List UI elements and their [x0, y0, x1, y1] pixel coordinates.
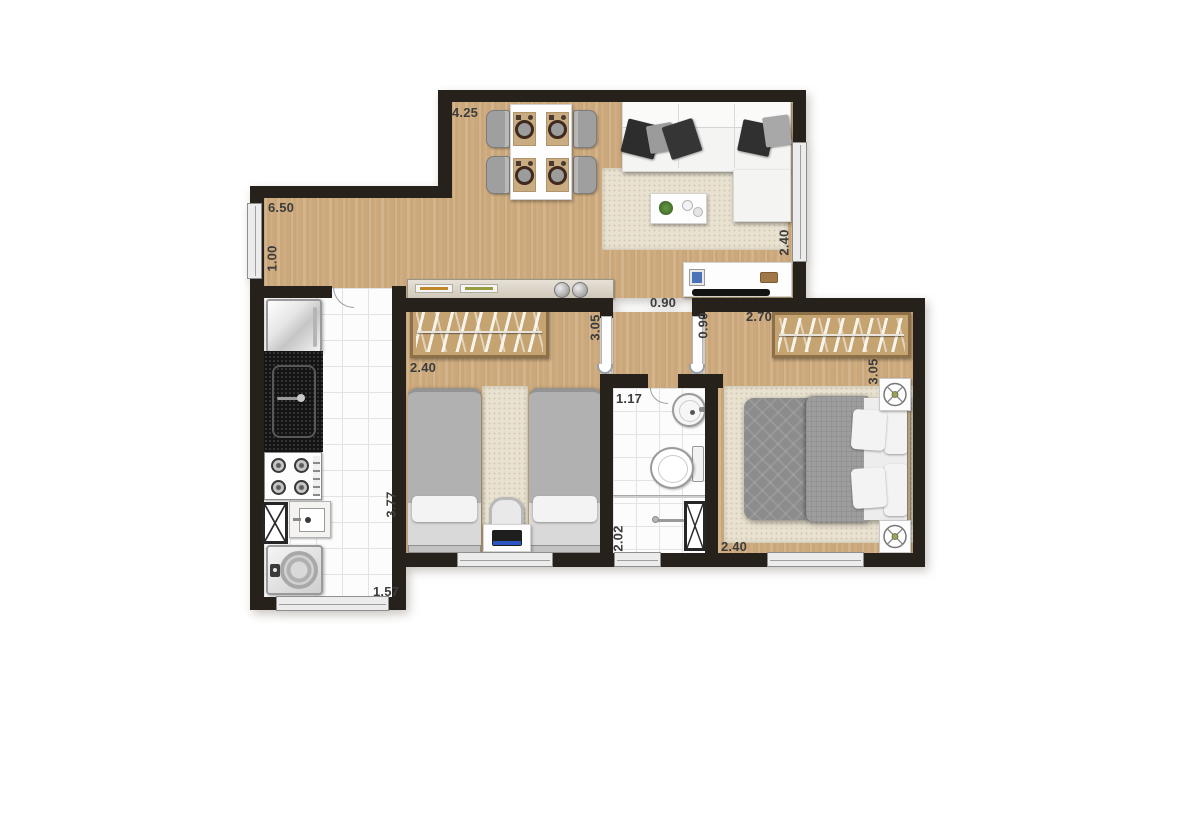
kitchen-sink	[272, 365, 316, 438]
wall-bathroom-top-left	[600, 374, 648, 388]
shower-bar-icon	[656, 519, 684, 522]
washing-machine	[266, 545, 323, 595]
dim-living-top: 4.25	[452, 105, 478, 120]
laptop-icon	[492, 530, 522, 546]
bed-quilt	[744, 398, 812, 520]
desk	[483, 524, 531, 552]
decor-knob-icon	[572, 282, 588, 298]
dim-kitchen-depth: 3.77	[384, 487, 399, 523]
nightstand	[879, 378, 911, 411]
place-setting	[546, 158, 569, 192]
shower-knob-icon	[652, 516, 659, 523]
serving-tray-icon	[460, 284, 498, 293]
sofa-chaise	[733, 170, 791, 222]
plate-icon	[515, 120, 534, 139]
decor-bowl-icon	[682, 200, 693, 211]
wall-bedroom2-right	[913, 298, 925, 567]
closet-rod-icon	[779, 334, 904, 336]
dining-chair	[573, 110, 597, 148]
bed-pillow	[884, 464, 908, 516]
dim-living-left-lower: 1.00	[265, 241, 280, 277]
fridge	[266, 299, 322, 353]
stove-knobs-icon	[313, 456, 320, 496]
place-setting	[513, 112, 536, 146]
dim-hall-width: 0.90	[696, 308, 711, 344]
kitchen-counter	[264, 351, 323, 452]
floor-plan: 4.25 6.50 1.00 2.40 0.90 0.90 2.70 3.05 …	[0, 0, 1200, 840]
sink-drain-icon	[690, 410, 695, 415]
serving-tray-icon	[415, 284, 453, 293]
wall-topleft-vertical	[438, 90, 452, 198]
coffee-table	[650, 193, 707, 224]
bed-pillow	[533, 496, 597, 522]
place-setting	[513, 158, 536, 192]
bedroom2-wardrobe	[772, 312, 911, 358]
bed-pillow	[851, 409, 888, 451]
dim-hall-opening: 0.90	[650, 295, 676, 310]
toilet-bowl	[650, 447, 694, 489]
duct-shaft-icon	[262, 502, 288, 544]
sideboard	[407, 279, 614, 299]
dim-living-right-window: 2.40	[777, 225, 792, 261]
fridge-handle-icon	[313, 307, 317, 347]
burner-icon	[271, 480, 286, 495]
dining-chair	[573, 156, 597, 194]
wall-bedroom2-top	[692, 298, 925, 312]
wall-bathroom-right	[705, 388, 718, 553]
bed-duvet	[529, 388, 601, 506]
place-setting	[546, 112, 569, 146]
bed-double	[744, 396, 911, 522]
plant-icon	[659, 201, 673, 215]
shower-divider	[613, 495, 705, 498]
bed-headboard	[907, 396, 911, 522]
stove	[264, 452, 322, 500]
burner-icon	[271, 458, 286, 473]
wall-kitchen-left	[250, 296, 264, 610]
wall-upperleft	[250, 186, 452, 198]
dim-bathroom-width: 1.17	[616, 391, 642, 406]
bed-pillow	[851, 467, 888, 509]
bed-duvet	[408, 388, 481, 506]
window-bedroom1	[457, 552, 553, 567]
dining-chair	[486, 156, 510, 194]
dim-kitchen-window: 1.57	[373, 584, 399, 599]
dim-bedroom2-depth: 3.05	[866, 354, 881, 390]
window-living-left	[247, 203, 262, 279]
dining-chair	[486, 110, 510, 148]
dim-bedroom2-width: 2.70	[746, 309, 772, 324]
dim-living-left: 6.50	[268, 200, 294, 215]
duct-shaft-icon	[684, 501, 706, 551]
faucet-knob-icon	[297, 394, 305, 402]
wall-bedroom1-top	[392, 298, 613, 312]
decor-box-icon	[760, 272, 778, 283]
picture-frame-icon	[690, 270, 704, 285]
plate-icon	[515, 166, 534, 185]
tank-drain-icon	[305, 517, 311, 523]
toilet-seat-icon	[658, 455, 688, 483]
washer-drum-icon	[280, 551, 318, 589]
dim-bedroom1-depth: 3.05	[588, 310, 603, 346]
bed-pillow	[412, 496, 477, 522]
lamp-icon	[880, 379, 910, 410]
plate-icon	[548, 120, 567, 139]
wall-bathroom-top-right	[678, 374, 723, 388]
window-bedroom2	[767, 552, 864, 567]
burner-icon	[294, 480, 309, 495]
sofa-seam	[734, 104, 735, 168]
lamp-icon	[880, 521, 910, 552]
canvas: 4.25 6.50 1.00 2.40 0.90 0.90 2.70 3.05 …	[0, 0, 1200, 840]
nightstand	[879, 520, 911, 553]
wall-top	[438, 90, 806, 102]
decor-bowl-icon	[693, 207, 703, 217]
tank-basin	[299, 508, 325, 532]
tv-icon	[692, 289, 770, 296]
decor-knob-icon	[554, 282, 570, 298]
dim-bedroom1-width: 2.40	[410, 360, 436, 375]
window-living-right	[792, 142, 807, 262]
bed-single-left	[408, 388, 481, 553]
plate-icon	[548, 166, 567, 185]
bed-single-right	[529, 388, 601, 553]
sofa-pillow	[762, 114, 792, 147]
toilet-tank	[692, 446, 704, 482]
laundry-tank	[289, 501, 331, 538]
washer-control-icon	[270, 564, 280, 577]
dim-bedroom2-window: 2.40	[721, 539, 747, 554]
bedroom1-wardrobe	[410, 306, 549, 358]
burner-icon	[294, 458, 309, 473]
tv-stand	[683, 262, 792, 297]
tank-tap-icon	[293, 518, 301, 521]
closet-rod-icon	[417, 331, 542, 333]
wall-kitchen-top	[250, 286, 332, 298]
dim-bathroom-depth: 2.02	[611, 521, 626, 557]
